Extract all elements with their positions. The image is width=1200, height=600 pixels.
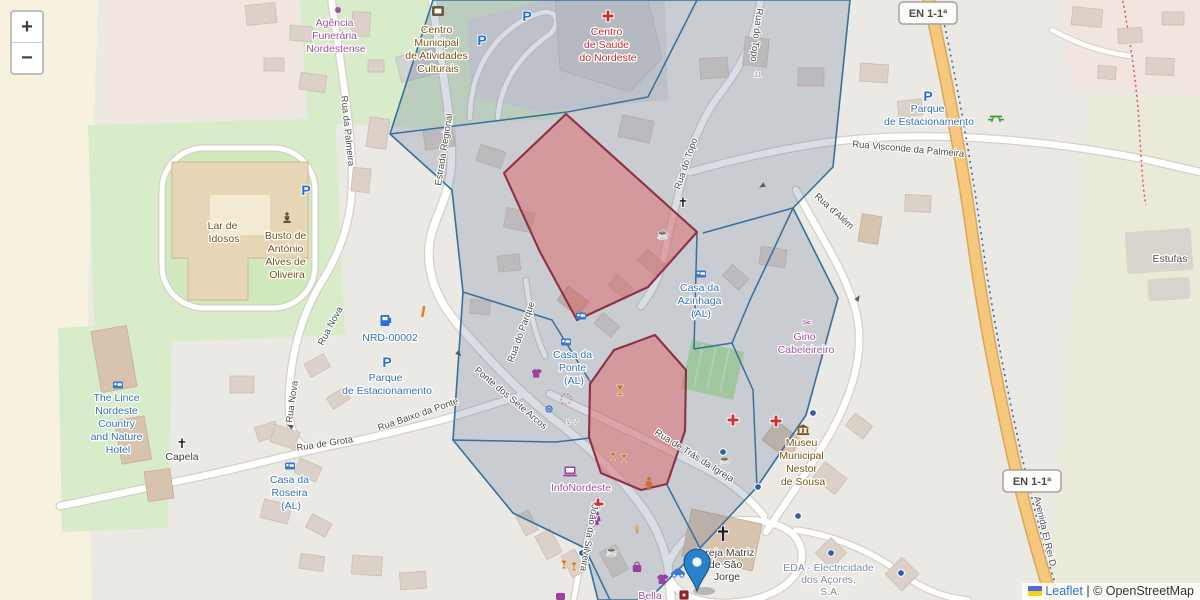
zoom-in-button[interactable]: +: [12, 12, 42, 43]
poi-label-nrd: NRD-00002: [362, 332, 418, 344]
hairdresser-scissors-icon: ✂: [802, 316, 812, 330]
lodging-icon: [113, 382, 123, 389]
poi-label-bella: Bella: [638, 590, 662, 600]
zoom-out-button[interactable]: −: [12, 43, 42, 73]
lodging-icon: [576, 313, 586, 320]
node-dot: [898, 570, 905, 577]
poi-label-capela: Capela: [165, 451, 198, 463]
lodging-icon: [696, 271, 706, 278]
community-centre-icon: [432, 6, 444, 16]
map-svg[interactable]: P P P P P ✝ ✝ ✝ ☕ ☕ ☕ ✂ ♀♂: [0, 0, 1200, 600]
osm-attribution: © OpenStreetMap: [1093, 584, 1194, 598]
node-dot: [828, 550, 835, 557]
church-cross-icon: ✝: [678, 195, 689, 210]
candle-icon: [636, 525, 639, 534]
poi-label-lar-de-idosos: Lar de Idosos: [208, 220, 241, 245]
poi-label-busto: Busto de António Alves de Oliveira: [265, 230, 309, 281]
poi-label-infonordeste: InfoNordeste: [551, 482, 611, 494]
shop-icon: [556, 593, 565, 600]
marker-hole: [692, 557, 701, 566]
parking-icon: P: [301, 182, 310, 198]
svg-text:EN 1-1ª: EN 1-1ª: [1013, 476, 1052, 488]
node-dot: [810, 410, 817, 417]
parking-icon: P: [477, 32, 486, 48]
zoom-control: + −: [10, 10, 44, 75]
node-dot: [755, 484, 762, 491]
house-number: 11: [754, 70, 762, 79]
leaflet-link[interactable]: Leaflet: [1045, 584, 1083, 598]
parking-icon: P: [382, 354, 391, 370]
shop-dot-icon: [335, 7, 341, 13]
attribution-bar: Leaflet | © OpenStreetMap: [1022, 583, 1200, 600]
leaflet-flag-icon: [1028, 586, 1042, 596]
lodging-icon: [561, 339, 571, 346]
map-canvas[interactable]: P P P P P ✝ ✝ ✝ ☕ ☕ ☕ ✂ ♀♂: [0, 0, 1200, 600]
lodging-icon: [285, 463, 295, 470]
poi-label-estufas: Estufas: [1152, 253, 1187, 265]
svg-text:EN 1-1ª: EN 1-1ª: [909, 8, 948, 20]
parking-icon: P: [923, 88, 932, 104]
shield-en-top: EN 1-1ª: [899, 2, 957, 24]
church-cross-icon: ✝: [177, 436, 188, 451]
shield-en-bottom: EN 1-1ª: [1003, 470, 1061, 492]
node-dot: [720, 449, 727, 456]
computer-shop-icon: [563, 467, 577, 477]
church-cross-icon: ✝: [715, 524, 732, 546]
bar-icon: [679, 590, 689, 600]
parking-icon: P: [522, 8, 531, 24]
cafe-icon: ☕: [605, 544, 619, 558]
node-dot: [795, 513, 802, 520]
toilets-icon: ♀♂: [565, 417, 580, 428]
cafe-icon: ☕: [656, 227, 670, 241]
attribution-separator: |: [1086, 584, 1089, 598]
poi-label-museu: Museu Municipal Nestor de Sousa: [779, 437, 826, 488]
